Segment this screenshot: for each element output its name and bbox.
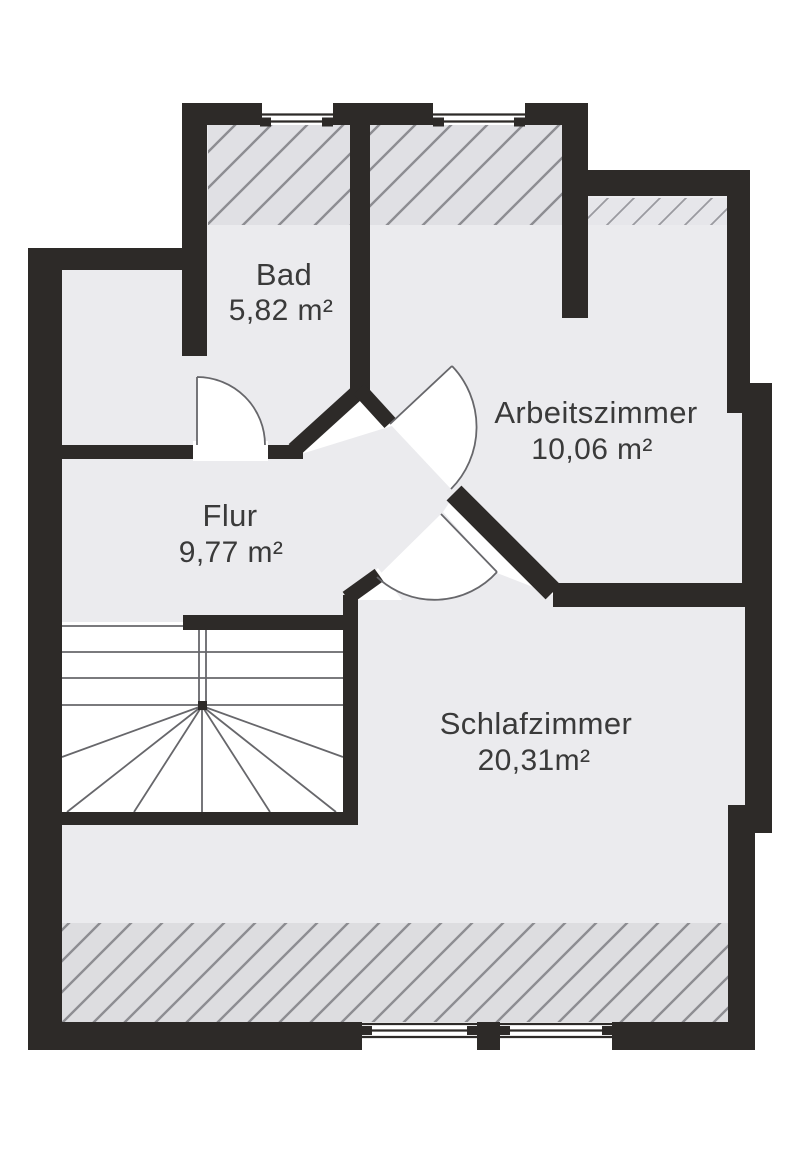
room-area-schlafzimmer: 20,31m² (478, 744, 591, 777)
window-top-right (433, 115, 525, 122)
wall-arbeitszimmer-schlafzimmer (553, 583, 760, 607)
window-nub (467, 1026, 477, 1035)
hatch-bad-lines (208, 125, 350, 225)
wall-arbeitszimmer-top (562, 170, 750, 196)
room-label-schlafzimmer: Schlafzimmer (440, 706, 633, 741)
wall-bottom-2 (612, 1022, 755, 1050)
wall-bottom-mullion (477, 1022, 500, 1050)
wall-right-step (728, 805, 772, 833)
hatch-bottom-lines (62, 923, 728, 1022)
wall-left (28, 248, 62, 1050)
window-nub (433, 118, 444, 127)
window-bottom-right (500, 1024, 612, 1037)
wall-middle-vertical (562, 103, 588, 318)
staircase (62, 622, 343, 812)
floor-plan-page: Bad 5,82 m² Arbeitszimmer 10,06 m² Flur … (0, 0, 800, 1151)
window-nub (362, 1026, 372, 1035)
hatch-middle-lines (370, 125, 562, 225)
wall-right-lower-1 (745, 607, 772, 805)
wall-flur-top-left (56, 445, 193, 459)
floor-arbeitszimmer (587, 196, 742, 585)
window-bottom-left (362, 1024, 477, 1037)
room-label-flur: Flur (203, 498, 258, 533)
window-nub (260, 118, 271, 127)
room-area-arbeitszimmer: 10,06 m² (531, 433, 653, 466)
floor-plan: Bad 5,82 m² Arbeitszimmer 10,06 m² Flur … (0, 0, 800, 1151)
wall-right-middle (742, 413, 772, 607)
room-label-arbeitszimmer: Arbeitszimmer (494, 395, 697, 430)
window-nub (500, 1026, 510, 1035)
window-nub (602, 1026, 612, 1035)
wall-right-upper (727, 170, 750, 383)
room-label-bad: Bad (256, 257, 312, 292)
window-nub (514, 118, 525, 127)
window-nub (322, 118, 333, 127)
wall-stair-bottom (62, 812, 358, 825)
wall-right-lower-2 (728, 833, 755, 1050)
wall-bad-arbeitszimmer-divider (350, 125, 370, 390)
room-area-bad: 5,82 m² (229, 294, 334, 327)
room-area-flur: 9,77 m² (179, 536, 284, 569)
hatch-band-arbeitszimmer-lines (587, 198, 727, 225)
wall-right-notch (727, 383, 772, 413)
wall-bad-left (182, 103, 207, 356)
wall-bottom-1 (28, 1022, 362, 1050)
wall-top-2 (333, 103, 433, 125)
stair-newel-post (198, 701, 207, 710)
wall-flur-bottom (183, 615, 358, 630)
